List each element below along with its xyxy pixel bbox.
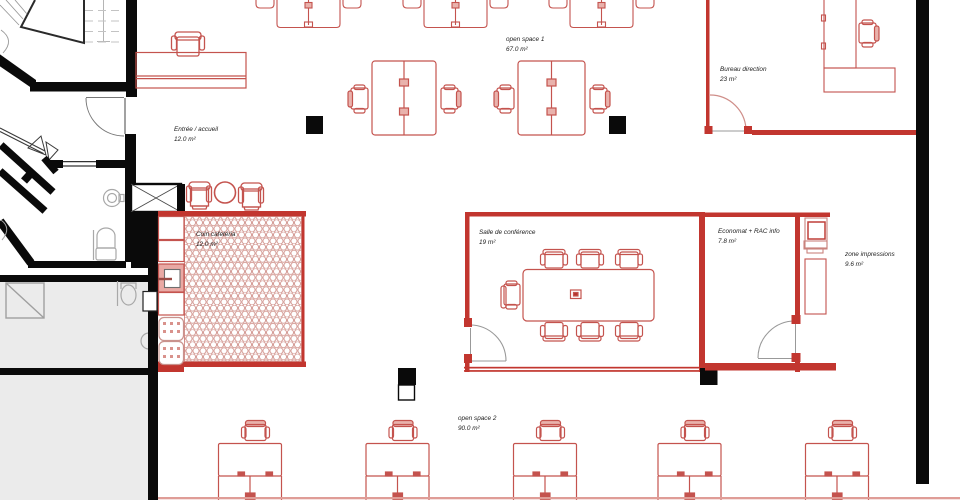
svg-text:Bureau direction: Bureau direction [720, 66, 767, 73]
svg-text:Coin cafetéria: Coin cafetéria [196, 231, 236, 238]
svg-text:23 m²: 23 m² [719, 76, 737, 83]
svg-text:12.0 m²: 12.0 m² [196, 241, 219, 248]
svg-text:67.0 m²: 67.0 m² [506, 46, 529, 53]
svg-text:open space 1: open space 1 [506, 36, 545, 43]
svg-text:7.8 m²: 7.8 m² [718, 238, 737, 245]
svg-text:12.0 m²: 12.0 m² [174, 136, 197, 143]
svg-text:open space 2: open space 2 [458, 415, 497, 422]
svg-text:19 m²: 19 m² [479, 239, 496, 246]
svg-text:Entrée / accueil: Entrée / accueil [174, 126, 219, 133]
svg-text:9.6 m²: 9.6 m² [845, 261, 864, 268]
svg-text:90.0 m²: 90.0 m² [458, 425, 481, 432]
svg-text:zone impressions: zone impressions [844, 251, 896, 258]
svg-text:Economat + RAC info: Economat + RAC info [718, 228, 780, 235]
svg-text:Salle de conférence: Salle de conférence [479, 229, 536, 236]
